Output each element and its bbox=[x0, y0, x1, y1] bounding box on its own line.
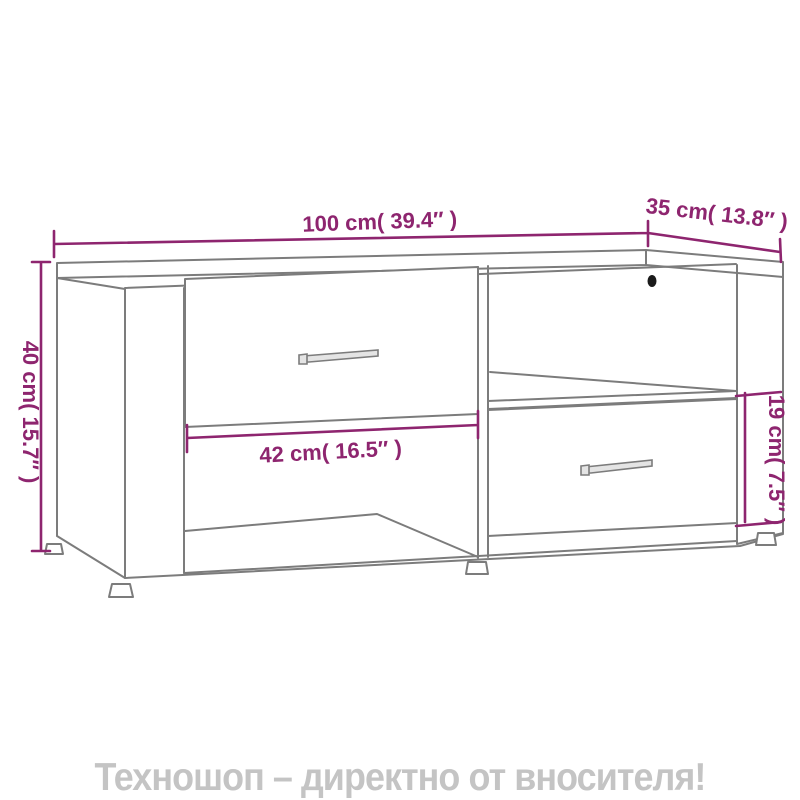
shop-banner-text: Техношоп – директно от вносителя! bbox=[32, 756, 768, 800]
left-drawer bbox=[185, 267, 478, 427]
dimension-depth-label: 35 cm( 13.8″ ) bbox=[645, 193, 790, 234]
cable-hole bbox=[648, 275, 657, 287]
foot-left-front bbox=[109, 584, 133, 597]
right-drawer bbox=[488, 399, 737, 536]
cabinet-left-side-panel bbox=[57, 278, 125, 578]
dimension-height-label: 40 cm( 15.7″ ) bbox=[18, 341, 43, 484]
dimension-width-label: 100 cm( 39.4″ ) bbox=[302, 206, 458, 236]
left-drawer-handle-cap bbox=[299, 354, 307, 364]
cabinet-line-drawing: 100 cm( 39.4″ ) 35 cm( 13.8″ ) 40 cm( 15… bbox=[0, 0, 800, 800]
foot-left-rear bbox=[45, 544, 63, 554]
right-open-compartment bbox=[488, 275, 736, 409]
cabinet-base bbox=[125, 534, 783, 578]
dimension-inner-width-label: 42 cm( 16.5″ ) bbox=[259, 435, 403, 467]
dimension-height-40cm: 40 cm( 15.7″ ) bbox=[18, 262, 50, 551]
dimension-inner-height-19cm: 19 cm( 7.5″ ) bbox=[736, 392, 789, 526]
foot-middle bbox=[466, 562, 488, 574]
right-drawer-handle-cap bbox=[581, 465, 589, 475]
cabinet-feet bbox=[45, 533, 776, 597]
dimension-width-100cm: 100 cm( 39.4″ ) bbox=[54, 206, 648, 257]
dimension-inner-height-label: 19 cm( 7.5″ ) bbox=[764, 395, 789, 525]
product-dimension-diagram: 100 cm( 39.4″ ) 35 cm( 13.8″ ) 40 cm( 15… bbox=[0, 0, 800, 800]
middle-divider-panel bbox=[478, 266, 488, 558]
foot-right bbox=[756, 533, 776, 545]
